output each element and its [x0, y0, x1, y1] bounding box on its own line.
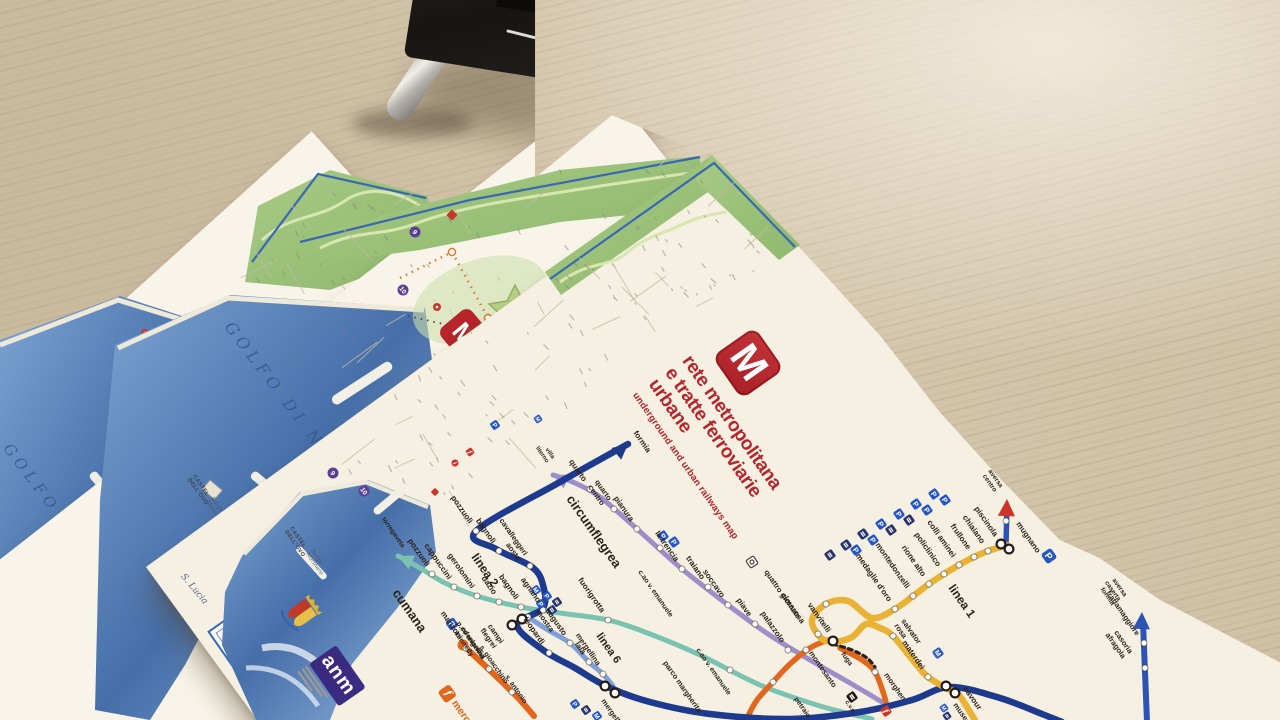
- photo-stage: GOLFO DI NAPOLI CASTELDELL'OVO BorgoMari…: [0, 0, 1280, 720]
